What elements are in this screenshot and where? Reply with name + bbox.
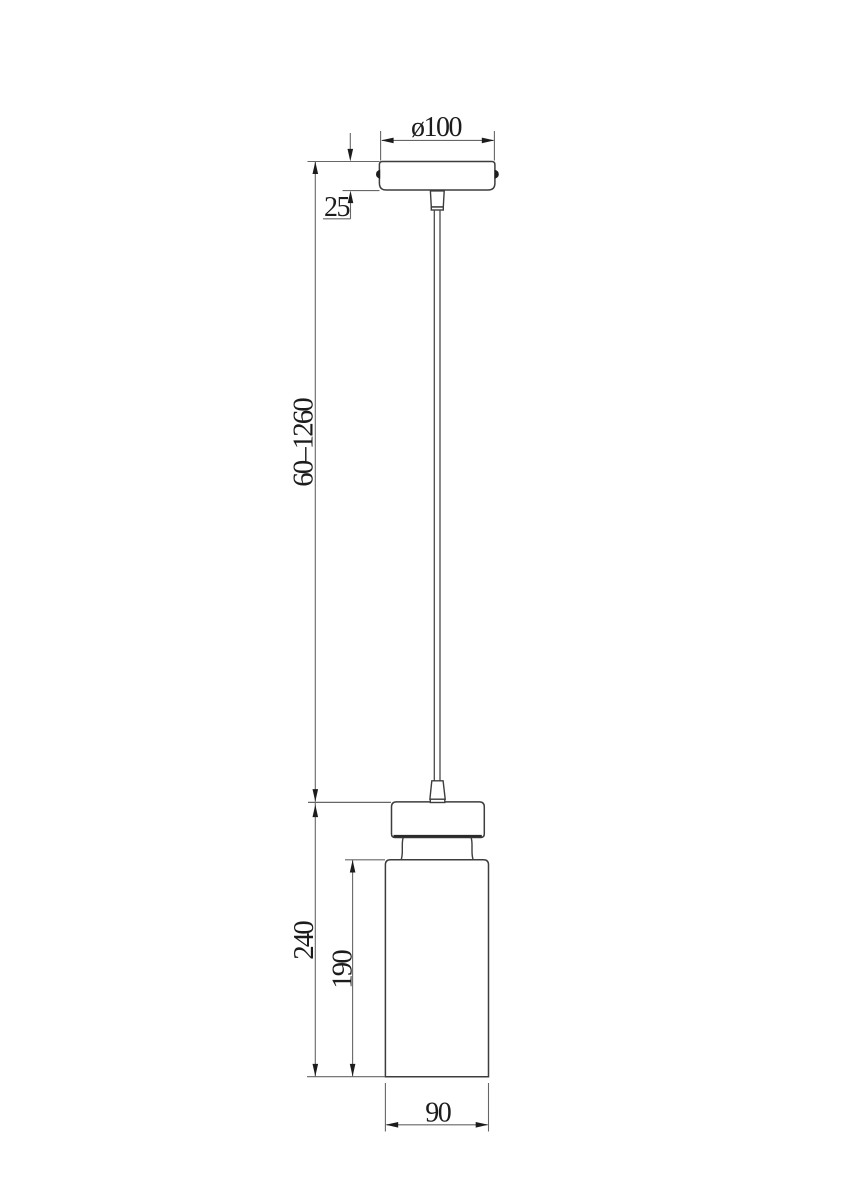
svg-text:ø100: ø100 — [411, 112, 462, 143]
svg-text:25: 25 — [324, 192, 350, 223]
svg-text:90: 90 — [425, 1098, 451, 1129]
svg-text:240: 240 — [288, 921, 320, 960]
svg-text:60–1260: 60–1260 — [288, 398, 320, 487]
svg-text:190: 190 — [327, 950, 359, 989]
